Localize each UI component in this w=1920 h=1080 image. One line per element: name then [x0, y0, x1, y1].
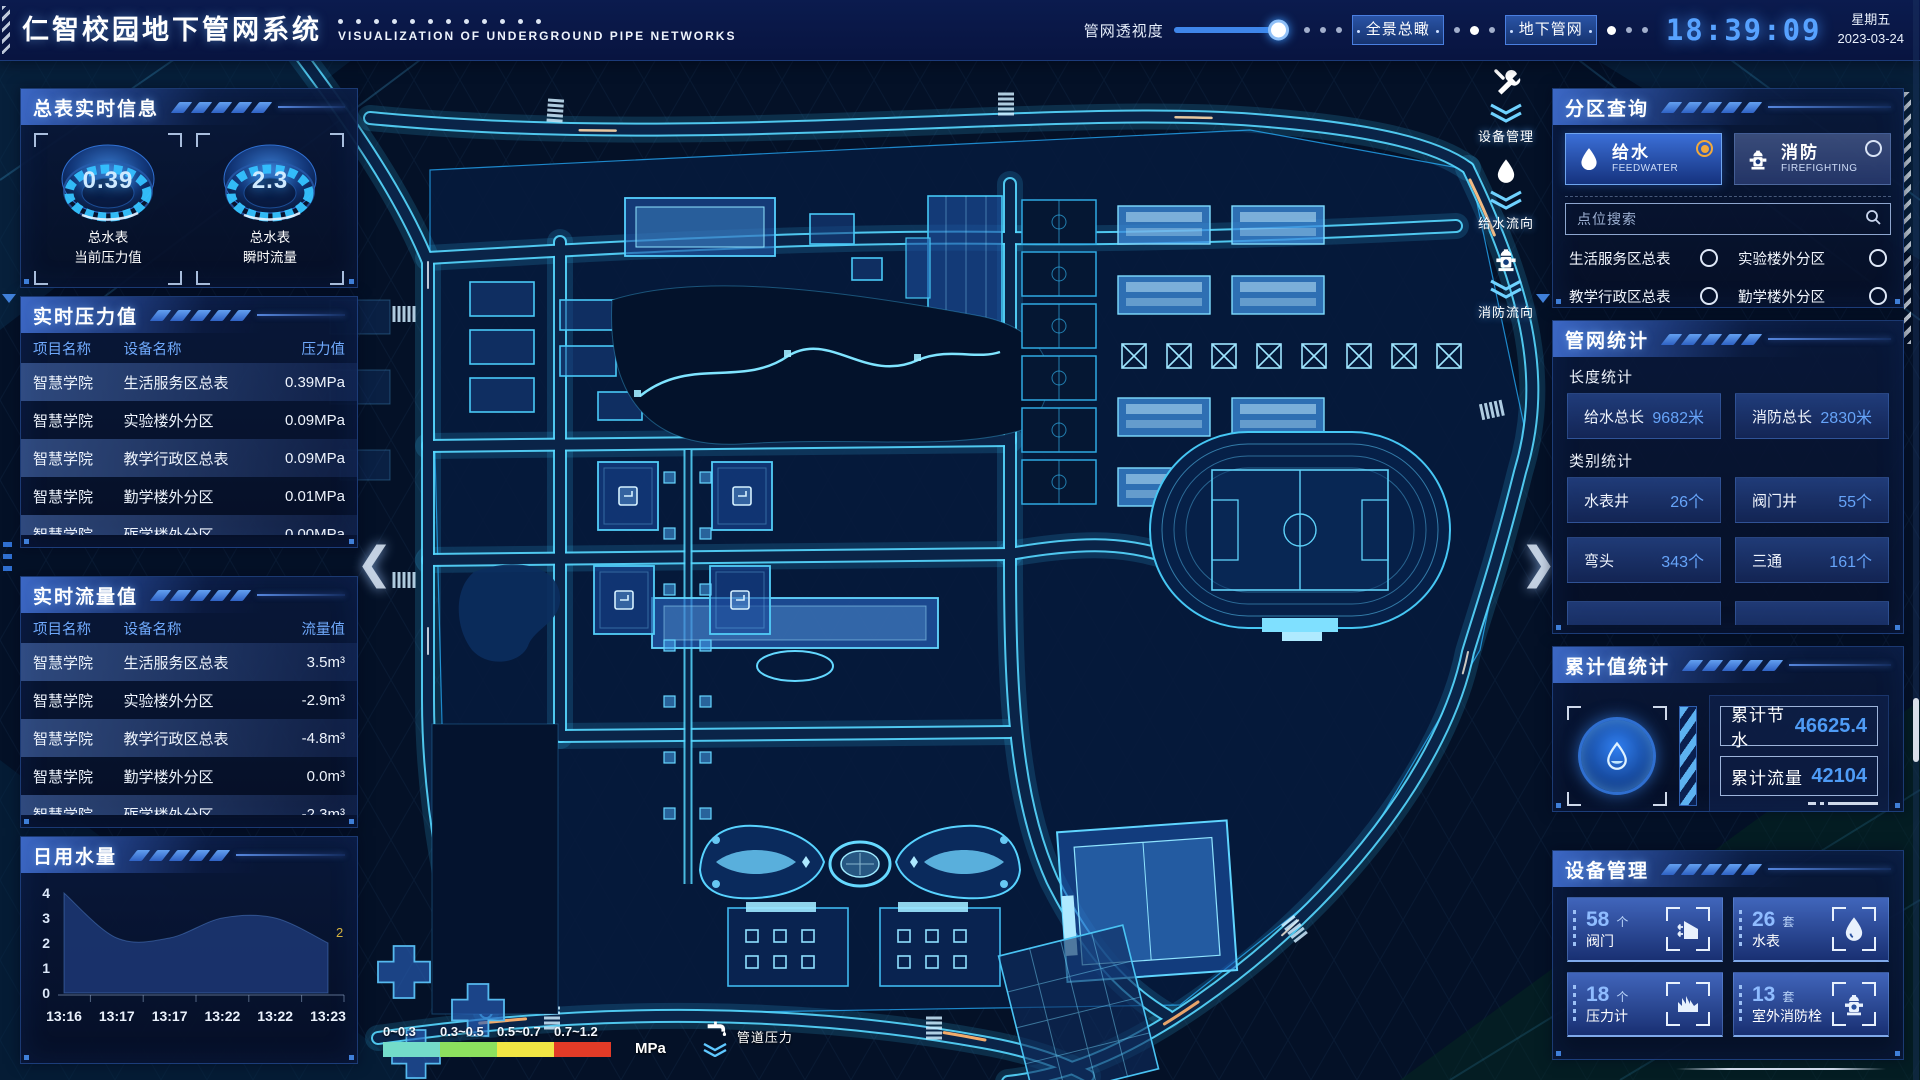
legend-color-swatch: [497, 1042, 554, 1057]
legend-color-swatch: [383, 1042, 440, 1057]
chevron-down-icon: [1488, 190, 1524, 210]
stat-box: 消防总长2830米: [1735, 393, 1889, 439]
map-side-buttons: 设备管理 给水流向 消防流向: [1470, 66, 1542, 333]
hazard-stripes-deco: [1904, 92, 1911, 344]
table-row: 智慧学院教学行政区总表-4.8m³: [21, 719, 357, 757]
water-drop-badge: [1567, 706, 1667, 806]
device-card-pressure-gauges[interactable]: 18个 压力计: [1567, 972, 1723, 1037]
clock-time: 18:39:09: [1666, 13, 1822, 47]
app-subtitle: VISUALIZATION OF UNDERGROUND PIPE NETWOR…: [338, 29, 736, 43]
section-header: 设备管理: [1553, 851, 1903, 887]
fire-flow-button[interactable]: 消防流向: [1478, 244, 1534, 321]
tab-sublabel: FIREFIGHTING: [1781, 163, 1858, 175]
deco-dots: [1607, 26, 1648, 35]
flow-table: 智慧学院生活服务区总表3.5m³ 智慧学院实验楼外分区-2.9m³ 智慧学院教学…: [21, 643, 357, 815]
search-icon[interactable]: [1865, 209, 1881, 230]
brand: 仁智校园地下管网系统 VISUALIZATION OF UNDERGROUND …: [22, 17, 736, 44]
deco-dots: [1304, 27, 1342, 33]
table-header: 项目名称 设备名称 压力值: [21, 333, 357, 363]
device-card-valves[interactable]: 58个 阀门: [1567, 897, 1723, 962]
point-item[interactable]: 勤学楼外分区: [1738, 277, 1887, 308]
table-header: 项目名称 设备名称 流量值: [21, 613, 357, 643]
hydrant-icon: [1832, 982, 1876, 1026]
panel-meter-info: 总表实时信息 0.39 总水表 当前压力值: [20, 88, 358, 288]
chevron-down-icon: [1488, 279, 1524, 299]
section-header: 实时压力值: [21, 297, 357, 333]
gauge-label-line2: 瞬时流量: [196, 248, 344, 268]
svg-text:0: 0: [42, 985, 50, 1001]
valve-icon: [1666, 907, 1710, 951]
tools-icon: [1489, 66, 1523, 103]
pressure-legend: 0~0.30.3~0.50.5~0.70.7~1.2 MPa 管道压力: [383, 1016, 793, 1057]
legend-color-bar: [383, 1042, 611, 1057]
section-header: 实时流量值: [21, 577, 357, 613]
gauge-value: 2.3: [196, 167, 344, 195]
cumulative-flow: 累计流量 42104: [1720, 756, 1878, 796]
page-scrollbar[interactable]: [1913, 0, 1919, 1080]
svg-text:13:16: 13:16: [46, 1008, 82, 1024]
point-list: 生活服务区总表 实验楼外分区 教学行政区总表 勤学楼外分区 砺学楼外分区 宿舍区…: [1553, 237, 1903, 308]
stat-box: 阀门井55个: [1735, 477, 1889, 523]
svg-text:4: 4: [42, 885, 50, 901]
radio-icon: [1869, 249, 1887, 267]
section-header: 分区查询: [1553, 89, 1903, 125]
radio-icon: [1869, 287, 1887, 305]
legend-range: 0.5~0.7: [497, 1024, 554, 1039]
weekday: 星期五: [1851, 11, 1890, 30]
water-flow-button[interactable]: 给水流向: [1478, 157, 1534, 232]
device-card-hydrants[interactable]: 13套 室外消防栓: [1733, 972, 1889, 1037]
point-search[interactable]: [1565, 203, 1891, 235]
legend-range-labels: 0~0.30.3~0.50.5~0.70.7~1.2: [383, 1024, 611, 1039]
legend-unit: MPa: [635, 1040, 666, 1057]
tab-firefighting[interactable]: 消防 FIREFIGHTING: [1734, 133, 1891, 185]
side-button-label: 消防流向: [1478, 302, 1534, 321]
tab-label: 消防: [1781, 143, 1858, 163]
transparency-slider[interactable]: [1174, 27, 1280, 33]
panel-device-mgmt: 设备管理 58个 阀门 26套 水表 18个 压力计: [1552, 850, 1904, 1060]
clipped-stat-row: [1553, 599, 1903, 625]
panorama-button[interactable]: 全景总瞰: [1352, 15, 1444, 45]
category-stats: 水表井26个 阀门井55个 弯头343个 三通161个: [1553, 475, 1903, 585]
section-header: 日用水量: [21, 837, 357, 873]
table-row: 智慧学院勤学楼外分区0.01MPa: [21, 477, 357, 515]
side-button-label: 给水流向: [1478, 213, 1534, 232]
section-title: 累计值统计: [1565, 652, 1670, 679]
slash-deco: [175, 102, 268, 113]
edge-arrow-deco: [1536, 294, 1550, 303]
app-title: 仁智校园地下管网系统: [22, 17, 322, 44]
side-button-label: 设备管理: [1478, 126, 1534, 145]
hydrant-icon: [1745, 146, 1771, 172]
date: 2023-03-24: [1838, 30, 1905, 49]
stat-box: 三通161个: [1735, 537, 1889, 583]
slash-deco: [1686, 660, 1779, 671]
pressure-table: 智慧学院生活服务区总表0.39MPa 智慧学院实验楼外分区0.09MPa 智慧学…: [21, 363, 357, 535]
svg-text:13:23: 13:23: [310, 1008, 346, 1024]
tab-sublabel: FEEDWATER: [1612, 163, 1678, 175]
cumulative-saving: 累计节水 46625.4: [1720, 706, 1878, 746]
point-item[interactable]: 教学行政区总表: [1569, 277, 1718, 308]
panel-cumulative: 累计值统计 累计节水 46625.4 累计流量 42104: [1552, 646, 1904, 812]
point-label: 教学行政区总表: [1569, 286, 1671, 307]
slash-deco: [154, 310, 247, 321]
slash-deco: [1665, 102, 1758, 113]
table-row: 智慧学院砺学楼外分区0.00MPa: [21, 515, 357, 535]
section-header: 累计值统计: [1553, 647, 1903, 683]
panel-realtime-pressure: 实时压力值 项目名称 设备名称 压力值 智慧学院生活服务区总表0.39MPa 智…: [20, 296, 358, 548]
panel-zone-query: 分区查询 给水 FEEDWATER: [1552, 88, 1904, 308]
underground-pipes-button[interactable]: 地下管网: [1505, 15, 1597, 45]
stat-box: 水表井26个: [1567, 477, 1721, 523]
tab-radio[interactable]: [1865, 140, 1882, 157]
svg-text:13:22: 13:22: [257, 1008, 293, 1024]
point-item[interactable]: 生活服务区总表: [1569, 239, 1718, 277]
svg-text:13:22: 13:22: [204, 1008, 240, 1024]
radio-icon: [1700, 287, 1718, 305]
section-header: 总表实时信息: [21, 89, 357, 125]
legend-label: 管道压力: [737, 1027, 793, 1046]
water-drop-icon: [1492, 157, 1520, 190]
title-dots: [338, 19, 736, 24]
gauge-label-line1: 总水表: [196, 228, 344, 248]
section-title: 实时流量值: [33, 582, 138, 609]
tab-radio[interactable]: [1696, 140, 1713, 157]
point-label: 实验楼外分区: [1738, 248, 1825, 269]
legend-range: 0.3~0.5: [440, 1024, 497, 1039]
slash-deco: [1665, 334, 1758, 345]
panel-realtime-flow: 实时流量值 项目名称 设备名称 流量值 智慧学院生活服务区总表3.5m³ 智慧学…: [20, 576, 358, 828]
section-title: 总表实时信息: [33, 94, 159, 121]
faucet-icon: [703, 1016, 727, 1043]
stat-box: 给水总长9682米: [1567, 393, 1721, 439]
section-title: 管网统计: [1565, 326, 1649, 353]
table-row: 智慧学院生活服务区总表3.5m³: [21, 643, 357, 681]
table-row: 智慧学院生活服务区总表0.39MPa: [21, 363, 357, 401]
radio-icon: [1700, 249, 1718, 267]
tab-feedwater[interactable]: 给水 FEEDWATER: [1565, 133, 1722, 185]
app-stage: 仁智校园地下管网系统 VISUALIZATION OF UNDERGROUND …: [0, 0, 1920, 1080]
device-mgmt-map-button[interactable]: 设备管理: [1478, 66, 1534, 145]
device-card-water-meters[interactable]: 26套 水表: [1733, 897, 1889, 962]
point-label: 勤学楼外分区: [1738, 286, 1825, 307]
gauge-flow: 2.3 总水表 瞬时流量: [196, 133, 344, 285]
daily-water-chart: 0123413:1613:1713:1713:2213:2213:232: [24, 875, 354, 1055]
edge-ticks-deco: [3, 542, 12, 571]
panel-daily-water: 日用水量 0123413:1613:1713:1713:2213:2213:23…: [20, 836, 358, 1064]
length-stats-label: 长度统计: [1553, 357, 1903, 391]
top-header: 仁智校园地下管网系统 VISUALIZATION OF UNDERGROUND …: [0, 0, 1920, 61]
section-header: 管网统计: [1553, 321, 1903, 357]
svg-text:13:17: 13:17: [152, 1008, 188, 1024]
table-row: 智慧学院实验楼外分区-2.9m³: [21, 681, 357, 719]
point-item[interactable]: 实验楼外分区: [1738, 239, 1887, 277]
svg-text:3: 3: [42, 910, 50, 926]
water-drop-icon: [1576, 146, 1602, 172]
carousel-left-arrow[interactable]: ❮: [356, 538, 393, 589]
header-hazard-stripes: [2, 6, 10, 54]
slider-knob[interactable]: [1268, 20, 1289, 41]
table-row: 智慧学院砺学楼外分区-2.3m³: [21, 795, 357, 815]
section-title: 实时压力值: [33, 302, 138, 329]
chevron-down-icon: [702, 1043, 728, 1057]
edge-arrow-deco: [2, 294, 16, 303]
clock-date: 星期五 2023-03-24: [1838, 11, 1905, 49]
slash-deco: [133, 850, 226, 861]
slider-fill: [1174, 27, 1280, 33]
stat-box: 弯头343个: [1567, 537, 1721, 583]
section-title: 设备管理: [1565, 856, 1649, 883]
legend-range: 0~0.3: [383, 1024, 440, 1039]
svg-text:2: 2: [336, 925, 343, 940]
panel-pipe-stats: 管网统计 长度统计 给水总长9682米 消防总长2830米 类别统计 水表井26…: [1552, 320, 1904, 634]
water-drop-icon: [1578, 717, 1656, 795]
stripe-deco: [1679, 706, 1697, 806]
svg-text:13:17: 13:17: [99, 1008, 135, 1024]
legend-color-swatch: [440, 1042, 497, 1057]
legend-color-swatch: [554, 1042, 611, 1057]
search-input[interactable]: [1575, 210, 1865, 228]
water-meter-icon: [1832, 907, 1876, 951]
category-stats-label: 类别统计: [1553, 441, 1903, 475]
table-row: 智慧学院实验楼外分区0.09MPa: [21, 401, 357, 439]
length-stats: 给水总长9682米 消防总长2830米: [1553, 391, 1903, 441]
table-row: 智慧学院教学行政区总表0.09MPa: [21, 439, 357, 477]
deco-dots: [1454, 26, 1495, 35]
section-title: 分区查询: [1565, 94, 1649, 121]
gauge-label-line2: 当前压力值: [34, 248, 182, 268]
pressure-gauge-icon: [1666, 982, 1710, 1026]
svg-text:2: 2: [42, 935, 50, 951]
transparency-label: 管网透视度: [1084, 20, 1164, 41]
slash-deco: [1665, 864, 1758, 875]
chevron-down-icon: [1488, 103, 1524, 123]
scrollbar-thumb[interactable]: [1913, 698, 1919, 762]
slash-deco: [154, 590, 247, 601]
gauge-label-line1: 总水表: [34, 228, 182, 248]
gauge-pressure: 0.39 总水表 当前压力值: [34, 133, 182, 285]
bottom-line-deco: [1676, 1068, 1886, 1070]
gauge-value: 0.39: [34, 167, 182, 195]
hydrant-icon: [1491, 244, 1521, 279]
table-row: 智慧学院勤学楼外分区0.0m³: [21, 757, 357, 795]
legend-range: 0.7~1.2: [554, 1024, 611, 1039]
section-title: 日用水量: [33, 842, 117, 869]
point-label: 生活服务区总表: [1569, 248, 1671, 269]
tab-label: 给水: [1612, 143, 1678, 163]
svg-text:1: 1: [42, 960, 50, 976]
